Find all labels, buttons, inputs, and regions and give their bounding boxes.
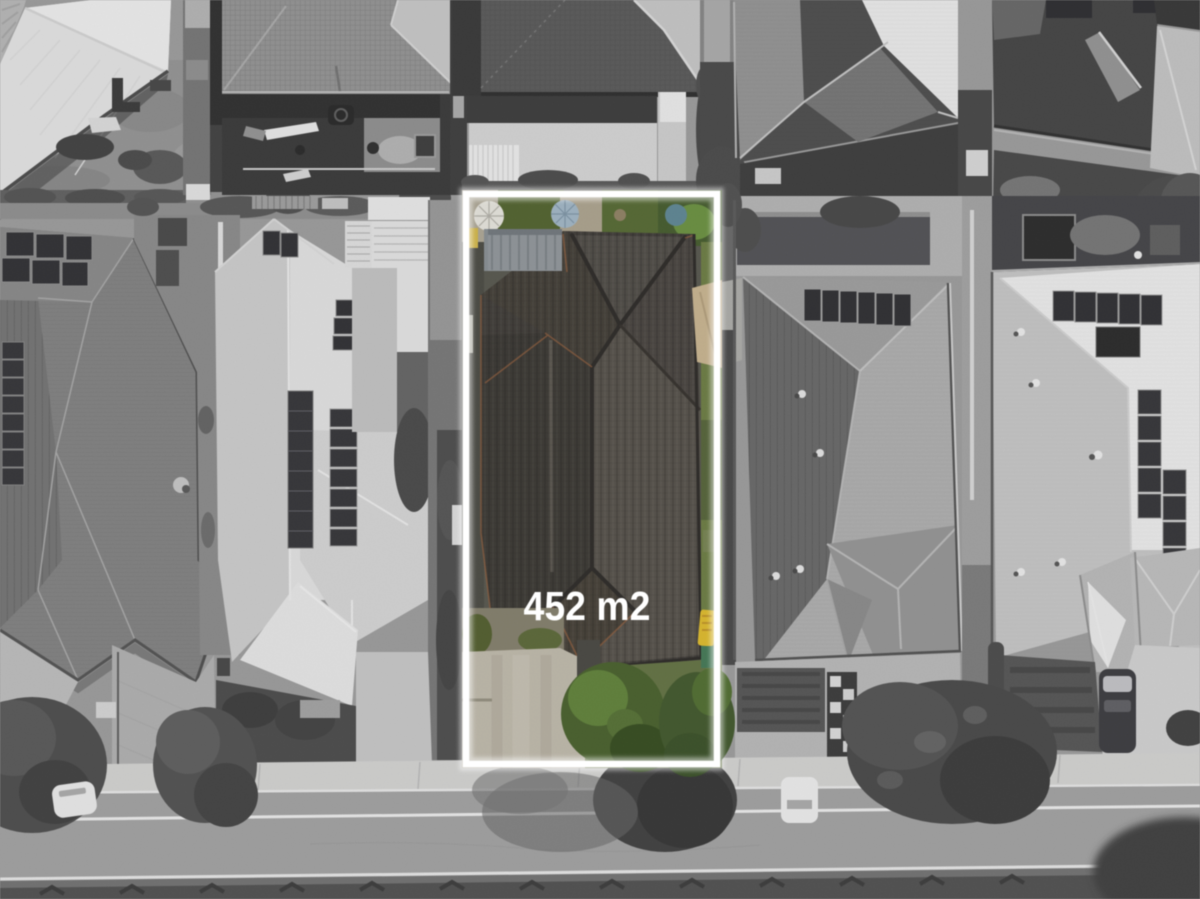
svg-text:452 m2: 452 m2 [524, 583, 651, 629]
